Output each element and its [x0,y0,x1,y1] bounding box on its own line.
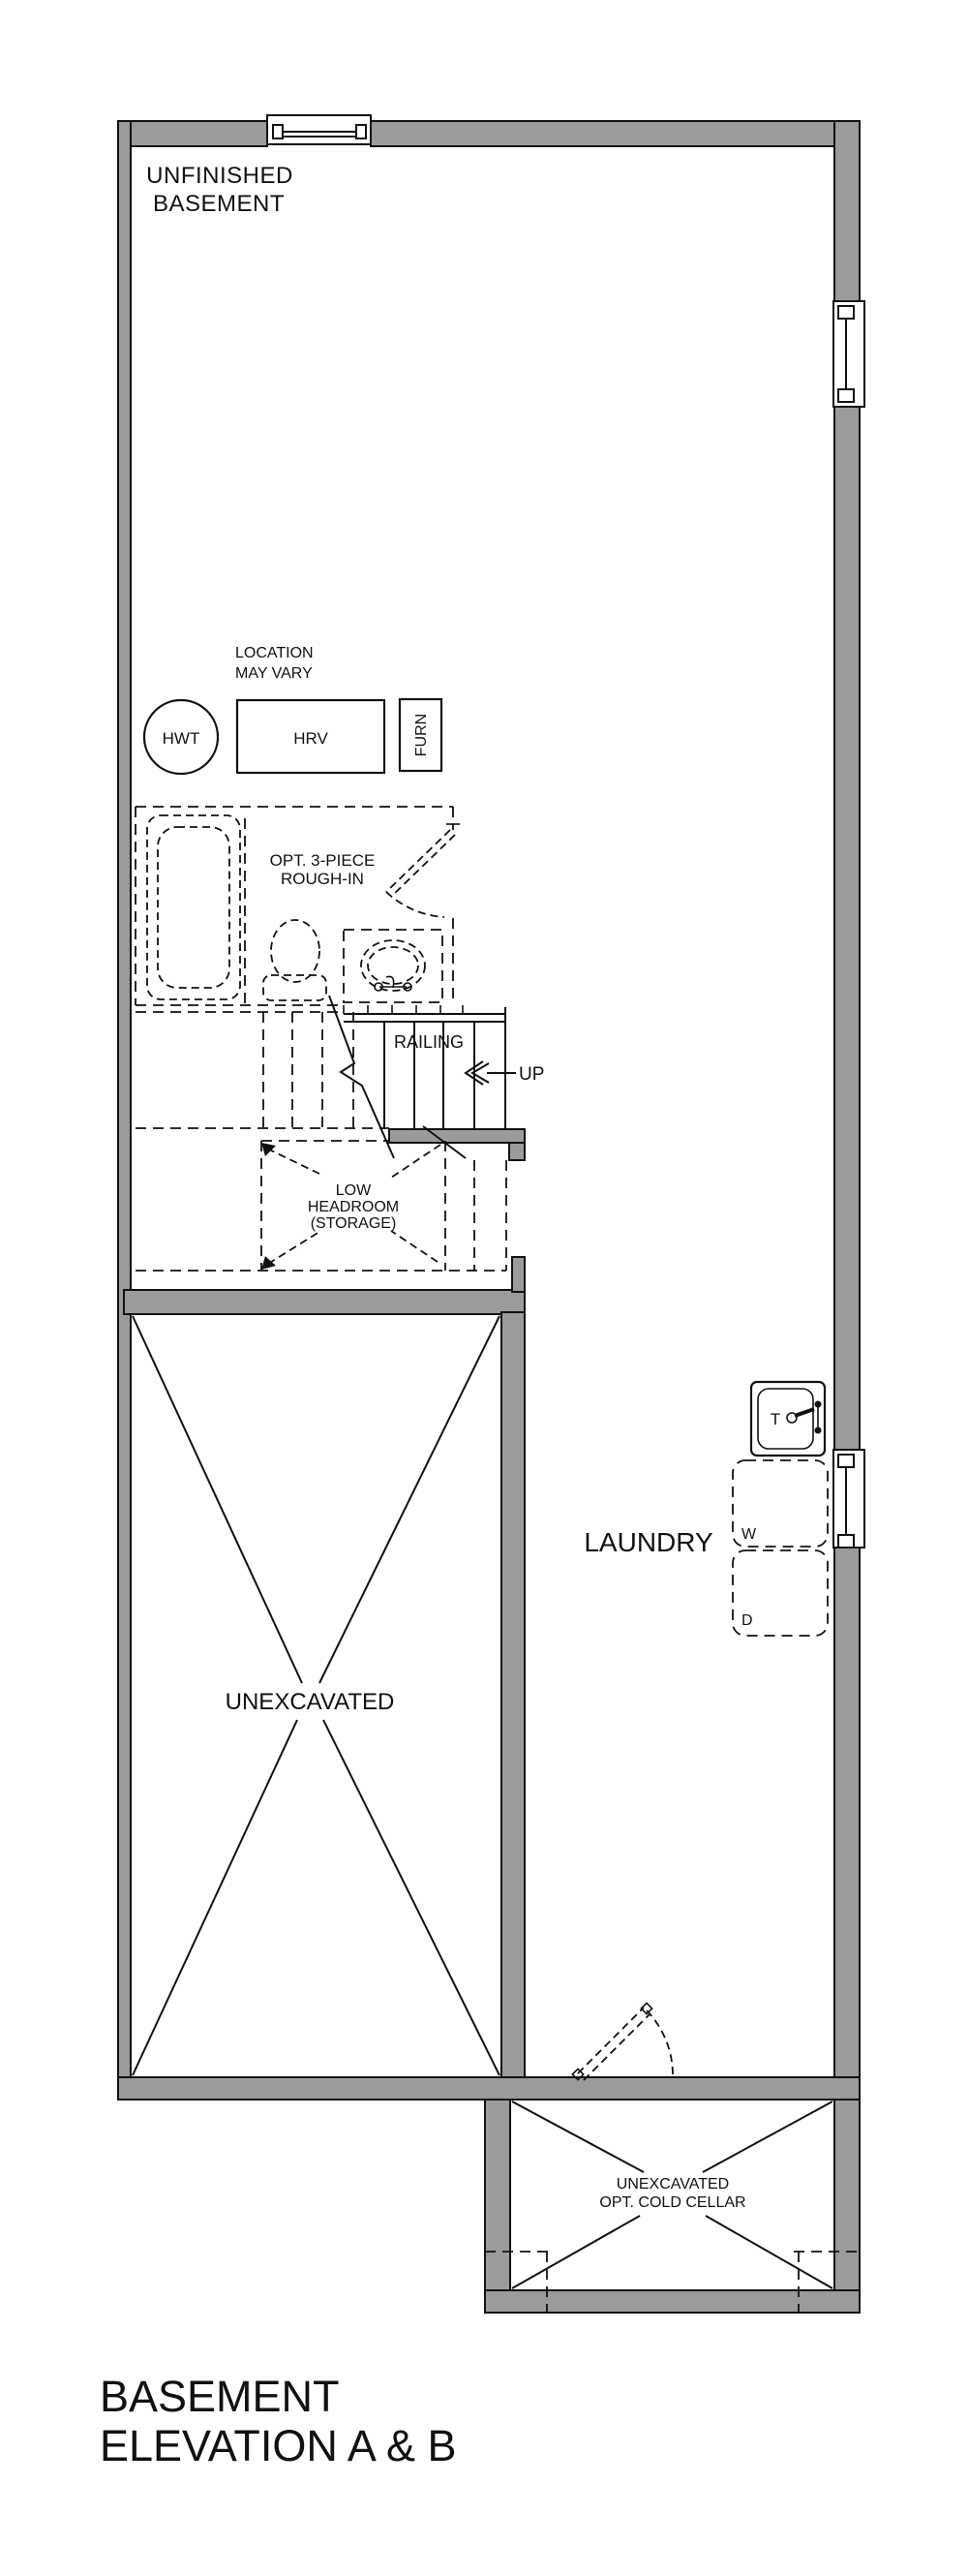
wall-right-lower [834,1548,860,2313]
room-label-laundry: LAUNDRY [584,1527,713,1557]
room-label-unfinished-basement-line2: BASEMENT [153,191,285,217]
cold-cellar-door-swing [572,2003,673,2080]
equipment-label-furn: FURN [413,714,430,756]
bathtub-rough-in [147,815,240,999]
wall-right-upper [834,121,860,301]
window-top [267,115,371,144]
equipment-label-hrv: HRV [293,729,328,748]
plan-title-line2: ELEVATION A & B [100,2421,456,2470]
note-low-headroom-line2: HEADROOM [308,1199,399,1215]
sink-rough-in [344,930,442,1002]
fixture-label-washer: W [741,1526,757,1543]
floor-plan-svg: UNFINISHED BASEMENT LOCATION MAY VARY HW… [0,0,968,2576]
note-up: UP [519,1064,544,1085]
wall-stair-landing [389,1129,525,1143]
storage-arrow-top-left [261,1143,276,1156]
laundry-tub [751,1382,825,1456]
note-location-line1: LOCATION [235,645,314,661]
room-label-unexcavated: UNEXCAVATED [226,1689,395,1715]
room-label-unfinished-basement-line1: UNFINISHED [146,163,293,189]
wall-mid-horizontal [124,1290,525,1314]
room-label-cold-cellar-line1: UNEXCAVATED [617,2176,729,2193]
wall-mid-vertical [501,1312,525,2077]
floor-plan-page: UNFINISHED BASEMENT LOCATION MAY VARY HW… [0,0,968,2576]
walls [118,121,860,2313]
wall-bottom-main [118,2077,860,2100]
equipment-label-hwt: HWT [163,729,200,748]
fixture-label-tub: T [771,1410,780,1428]
plan-title-line1: BASEMENT [100,2372,340,2421]
window-right-laundry [833,1450,864,1548]
fixture-label-dryer: D [741,1612,753,1629]
note-low-headroom-line3: (STORAGE) [311,1215,397,1232]
note-railing: RAILING [394,1032,464,1052]
up-arrow-icon [466,1061,516,1085]
note-rough-in-line1: OPT. 3-PIECE [270,851,376,870]
wall-cold-cellar-bottom [485,2290,860,2313]
toilet-rough-in [263,920,326,1000]
room-label-cold-cellar-line2: OPT. COLD CELLAR [599,2194,745,2211]
wall-left [118,121,131,2100]
wall-right-middle [834,407,860,1450]
wall-top-left [118,121,267,146]
wall-top-right [371,121,860,146]
note-low-headroom-line1: LOW [336,1182,372,1199]
rough-in-door-swing [386,824,460,917]
wall-cold-cellar-left [485,2100,510,2313]
window-right-upper [833,301,864,407]
note-rough-in-line2: ROUGH-IN [281,870,364,888]
storage-arrow-bottom-left [261,1256,276,1270]
rough-in-bathroom [136,807,460,1005]
wall-mid-vertical-stub [512,1257,525,1292]
note-location-line2: MAY VARY [235,665,313,682]
wall-stair-stub [509,1143,525,1160]
